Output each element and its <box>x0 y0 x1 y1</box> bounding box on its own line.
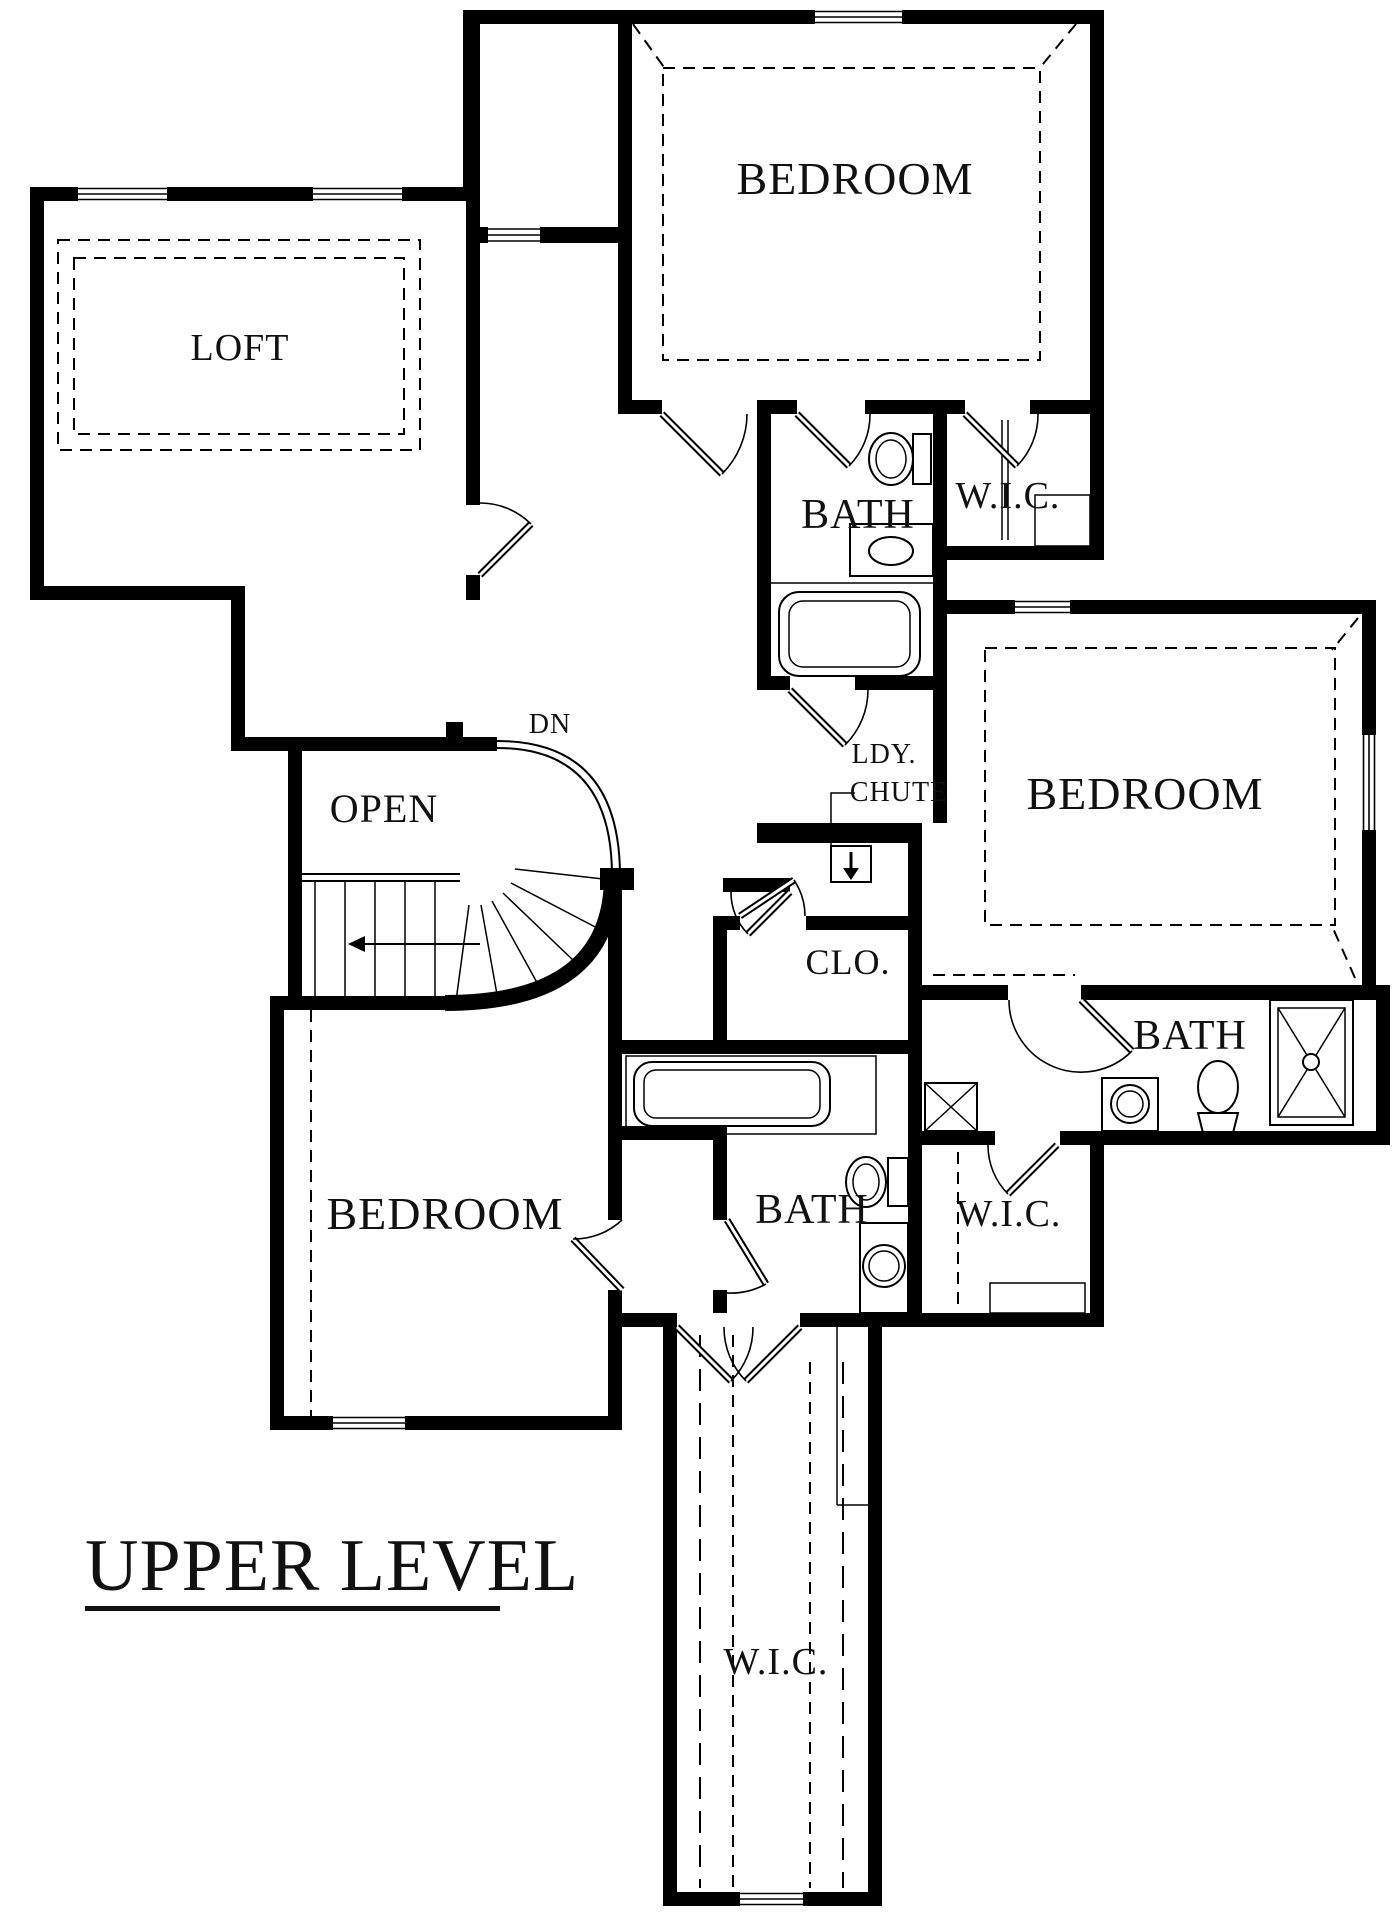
room-label-wic-bottom: W.I.C. <box>724 1641 829 1683</box>
plan-title: UPPER LEVEL <box>85 1525 579 1611</box>
window <box>1362 735 1376 830</box>
plan-title-underline <box>85 1606 500 1611</box>
door-swing-bedroom-top <box>662 414 747 474</box>
window <box>78 187 167 201</box>
door-swing-corridor-left <box>677 1327 753 1381</box>
room-label-bedroom-right: BEDROOM <box>1026 768 1263 819</box>
room-label-loft: LOFT <box>191 327 290 369</box>
window <box>488 227 540 243</box>
room-label-bath-lower: BATH <box>755 1187 869 1233</box>
room-label-open: OPEN <box>330 786 438 831</box>
room-label-wic-lower: W.I.C. <box>957 1193 1062 1235</box>
window <box>333 1416 405 1430</box>
room-label-closet: CLO. <box>806 942 891 982</box>
annotation-ldy: LDY. <box>852 739 917 770</box>
shower-right-bath <box>1270 1000 1353 1125</box>
window <box>740 1892 803 1906</box>
door-swing-linen <box>790 690 868 745</box>
chase-x-box <box>925 1083 977 1131</box>
room-label-wic-top: W.I.C. <box>956 475 1061 517</box>
floor-plan-page: LOFT BEDROOM BATH W.I.C. LDY. CHUTE BEDR… <box>0 0 1397 1920</box>
stair-curved-wall <box>445 876 612 1003</box>
door-swing-corridor-right <box>724 1327 800 1381</box>
floor-plan-drawing: LOFT BEDROOM BATH W.I.C. LDY. CHUTE BEDR… <box>0 0 1397 1920</box>
plan-title-text: UPPER LEVEL <box>85 1525 579 1607</box>
vanity-sink-lower-bath <box>860 1223 908 1313</box>
room-label-bath-top: BATH <box>801 492 915 538</box>
room-label-bedroom-lower: BEDROOM <box>326 1188 563 1239</box>
room-label-bath-right: BATH <box>1133 1013 1247 1059</box>
door-swing-bedroom-lower <box>573 1220 622 1290</box>
bathtub-top-bath <box>771 583 933 676</box>
door-swing-loft <box>480 503 531 575</box>
bathtub-lower-bath <box>626 1056 876 1134</box>
annotation-dn: DN <box>529 709 571 740</box>
toilet-fixture-right-bath <box>1198 1061 1238 1137</box>
walls <box>30 10 1390 1906</box>
annotation-chute: CHUTE <box>850 777 948 808</box>
door-swing-bath-top <box>797 414 870 466</box>
room-label-bedroom-top: BEDROOM <box>736 153 973 204</box>
staircase <box>302 741 620 1003</box>
stair-direction-arrow <box>348 936 480 952</box>
vanity-sink-right-bath <box>1102 1078 1158 1131</box>
window <box>313 187 402 201</box>
window <box>815 10 902 24</box>
door-swing-wic-lower <box>988 1145 1057 1194</box>
window <box>1015 600 1070 614</box>
fixtures <box>626 420 1353 1505</box>
toilet-fixture-top-bath <box>869 433 931 485</box>
door-swing-bath-right <box>1009 1000 1132 1072</box>
